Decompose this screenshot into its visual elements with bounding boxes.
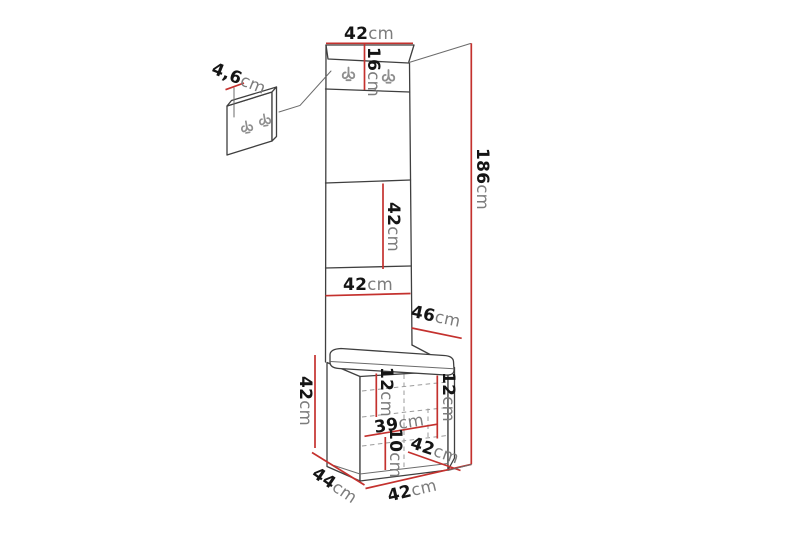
label-total-height: 186cm: [472, 148, 492, 210]
panel-right-edge: [410, 63, 413, 345]
bench-left-face: [327, 363, 360, 482]
label-panel-thickness: 4,6cm: [209, 59, 269, 99]
height-extension-line-top: [409, 44, 471, 63]
detail-panel-side: [272, 87, 277, 141]
label-bench-height: 42cm: [295, 376, 315, 426]
coat-hook-icon: [383, 70, 395, 83]
label-mid-panel-height: 42cm: [383, 202, 403, 252]
furniture-dimension-diagram: 42cm 16cm 4,6cm 186cm 42cm 42cm 46cm 42c…: [0, 0, 800, 533]
label-bench-bottom-width: 42cm: [386, 476, 439, 507]
label-drawer-lower-height: 10cm: [385, 428, 405, 478]
detail-callout-line: [279, 71, 331, 112]
panel-joint-line-1: [326, 180, 411, 183]
label-panel-width-top: 42cm: [344, 24, 394, 44]
label-hook-panel-height: 16cm: [363, 47, 383, 97]
panel-joint-line-2: [326, 266, 411, 268]
label-mid-panel-width: 42cm: [343, 275, 393, 295]
label-drawer-upper-right-height: 12cm: [438, 372, 458, 422]
dimension-diagram-page: 42cm 16cm 4,6cm 186cm 42cm 42cm 46cm 42c…: [0, 0, 800, 533]
coat-hook-icon: [343, 68, 355, 81]
panel-left-edge: [326, 45, 327, 362]
label-drawer-upper-left-height: 12cm: [376, 367, 396, 417]
label-bench-top-depth: 46cm: [409, 302, 462, 332]
